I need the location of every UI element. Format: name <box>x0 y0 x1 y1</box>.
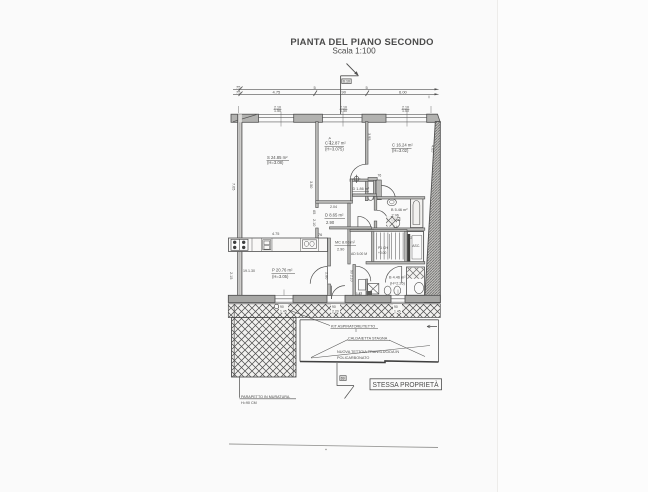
svg-text:1.50: 1.50 <box>340 109 347 113</box>
svg-text:CALDAIETTA STAGNA: CALDAIETTA STAGNA <box>348 337 388 341</box>
svg-text:C 16.24 m²: C 16.24 m² <box>392 143 413 148</box>
svg-text:POLICARBONATO: POLICARBONATO <box>337 356 369 360</box>
svg-text:1.50: 1.50 <box>402 109 409 113</box>
svg-text:69: 69 <box>341 377 345 381</box>
svg-text:PIANTA DEL PIANO SECONDO: PIANTA DEL PIANO SECONDO <box>290 36 433 47</box>
svg-text:1.50: 1.50 <box>274 109 281 113</box>
svg-text:1.87: 1.87 <box>356 292 362 296</box>
svg-text:90: 90 <box>332 305 336 309</box>
svg-text:+0.00: +0.00 <box>378 251 387 255</box>
svg-text:ASC.: ASC. <box>412 244 420 248</box>
svg-text:KIT ASPIRATORE/TETTO: KIT ASPIRATORE/TETTO <box>331 325 375 329</box>
svg-text:4.75: 4.75 <box>273 89 282 94</box>
svg-text:7.05: 7.05 <box>232 183 236 190</box>
svg-text:90: 90 <box>350 270 354 274</box>
svg-text:2.04: 2.04 <box>330 205 337 209</box>
svg-text:65: 65 <box>312 210 316 214</box>
svg-text:MC 8.00 m²: MC 8.00 m² <box>335 241 356 245</box>
svg-text:2.10: 2.10 <box>312 219 316 226</box>
svg-text:90: 90 <box>342 90 347 95</box>
svg-text:90: 90 <box>280 305 284 309</box>
svg-text:76: 76 <box>378 174 382 178</box>
svg-text:1.45: 1.45 <box>280 310 287 314</box>
svg-text:D 1.86 m²: D 1.86 m² <box>353 187 370 191</box>
svg-text:2.15: 2.15 <box>229 272 233 279</box>
svg-text:76: 76 <box>318 233 322 237</box>
svg-text:B 4.46 m²: B 4.46 m² <box>389 276 406 280</box>
svg-text:STESSA PROPRIETÀ: STESSA PROPRIETÀ <box>373 380 439 389</box>
svg-text:PARAPETTO IN MURATURA.: PARAPETTO IN MURATURA. <box>241 395 290 399</box>
svg-text:2.90: 2.90 <box>337 248 344 252</box>
svg-text:AD 5.00 M: AD 5.00 M <box>351 252 367 256</box>
svg-text:2.10: 2.10 <box>350 275 354 282</box>
svg-text:2.80: 2.80 <box>325 272 329 279</box>
svg-text:H=90 CM: H=90 CM <box>241 401 257 405</box>
svg-text:P 20.76 m²: P 20.76 m² <box>272 268 293 273</box>
svg-text:P2: P2 <box>408 236 412 240</box>
svg-text:3.50: 3.50 <box>309 181 313 188</box>
svg-text:4.75: 4.75 <box>272 232 279 236</box>
svg-text:(H=3.08): (H=3.08) <box>267 160 284 165</box>
svg-text:Scala 1:100: Scala 1:100 <box>332 47 376 56</box>
svg-text:NUOVA TETTOIA TRANSLUCIDA IN: NUOVA TETTOIA TRANSLUCIDA IN <box>337 350 399 354</box>
svg-text:90: 90 <box>394 305 398 309</box>
svg-text:75: 75 <box>236 84 241 89</box>
svg-text:2.90: 2.90 <box>326 220 335 225</box>
svg-text:75: 75 <box>236 90 241 95</box>
svg-text:6.00: 6.00 <box>399 90 408 95</box>
svg-text:(H=3.05): (H=3.05) <box>272 274 289 279</box>
svg-text:4.65: 4.65 <box>431 145 435 152</box>
svg-text:4.77: 4.77 <box>328 137 332 144</box>
svg-text:(H=2.26): (H=2.26) <box>390 282 406 286</box>
svg-text:3.95: 3.95 <box>367 133 371 140</box>
svg-text:B 5.46 m²: B 5.46 m² <box>391 208 408 212</box>
svg-text:P1 CH: P1 CH <box>378 246 388 250</box>
svg-text:19.1.30: 19.1.30 <box>243 269 255 273</box>
svg-text:1.45: 1.45 <box>394 310 401 314</box>
svg-text:(H=3.075): (H=3.075) <box>325 146 344 151</box>
svg-text:D 8.65 m²: D 8.65 m² <box>325 213 344 218</box>
svg-text:6.10: 6.10 <box>343 80 350 84</box>
svg-text:2.20: 2.20 <box>332 310 339 314</box>
